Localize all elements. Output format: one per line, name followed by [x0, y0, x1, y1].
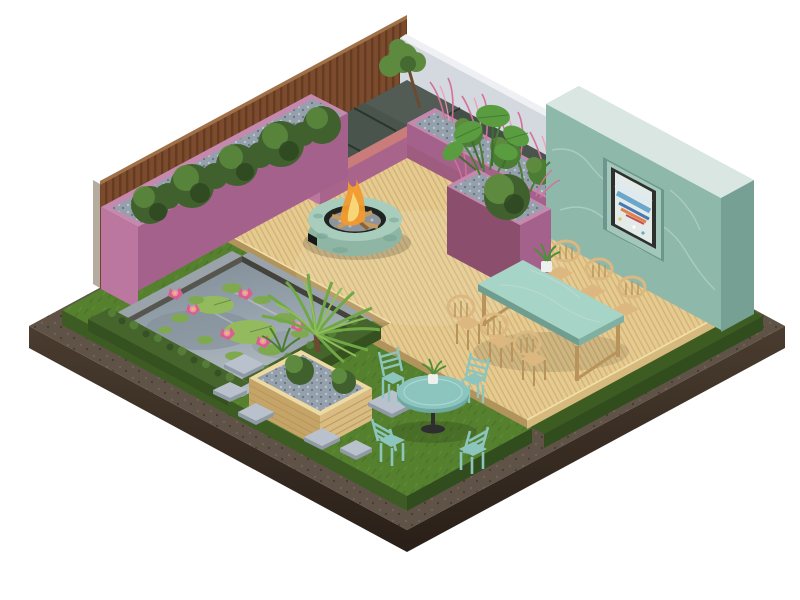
teal-wall-right-face [721, 180, 754, 332]
painting-dab-1 [618, 217, 621, 220]
isometric-garden-scene: Isometric garden patio — 3D render [0, 0, 800, 600]
painting-dab-3 [641, 231, 644, 234]
round-bush [484, 174, 530, 220]
painting-dab-2 [632, 225, 635, 228]
fence-end-cap [93, 180, 100, 288]
garden-render-canvas: Isometric garden patio — 3D render [0, 0, 800, 600]
